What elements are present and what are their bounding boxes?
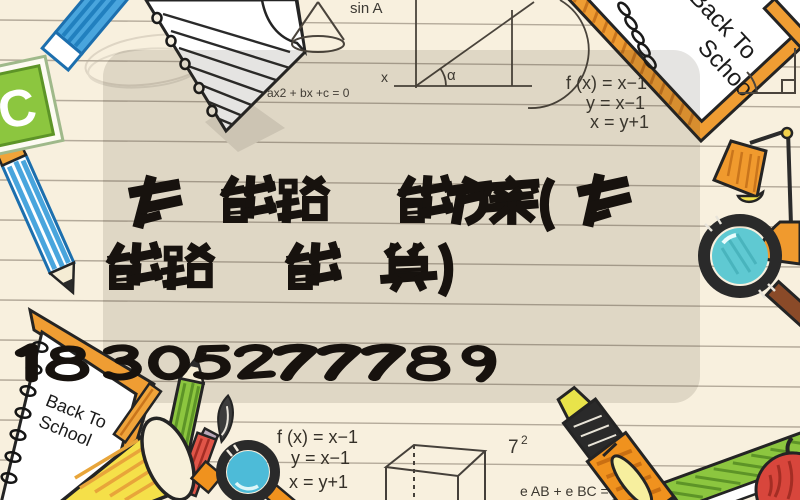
- svg-text:sin A: sin A: [350, 0, 383, 17]
- svg-text:2: 2: [521, 433, 528, 447]
- svg-text:7: 7: [508, 437, 519, 458]
- svg-text:y = x−1: y = x−1: [291, 448, 350, 468]
- svg-text:x = y+1: x = y+1: [289, 472, 348, 492]
- svg-text:f (x) = x−1: f (x) = x−1: [277, 427, 358, 447]
